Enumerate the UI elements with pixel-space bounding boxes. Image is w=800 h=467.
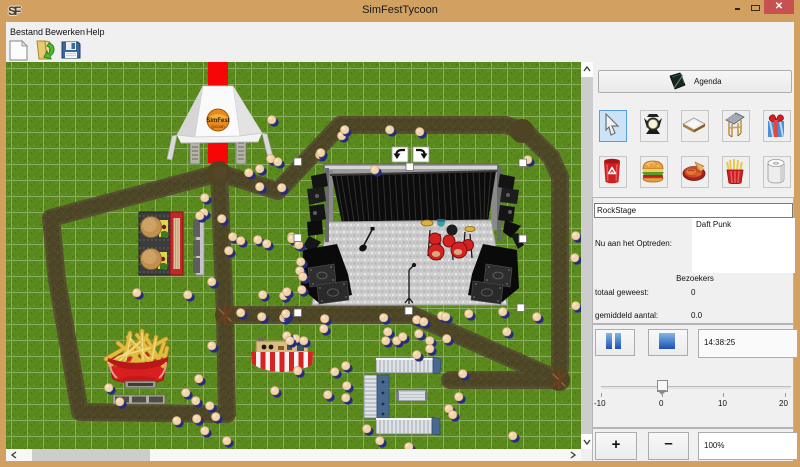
svg-text:tycoon: tycoon [211, 124, 225, 129]
